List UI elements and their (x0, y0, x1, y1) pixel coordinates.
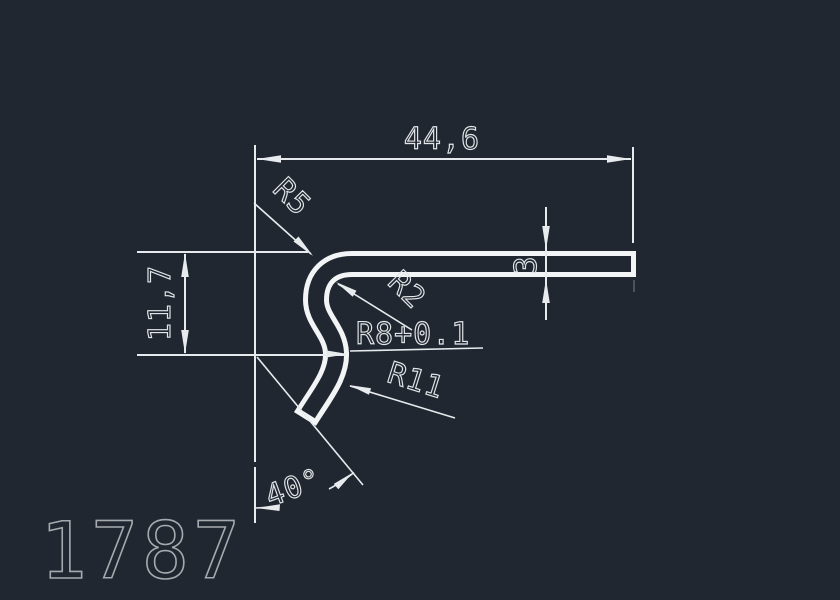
leader-r8-label: R8+0.1 (356, 317, 470, 352)
dim-width-label: 44,6 (404, 122, 480, 157)
drawing-number: 1787 (40, 507, 244, 597)
cad-canvas: 44,6 11,7 3 R5 R2 R8+0.1 R11 (0, 0, 840, 600)
dim-thickness-label: 3 (509, 255, 544, 274)
dim-height-label: 11,7 (143, 265, 178, 341)
